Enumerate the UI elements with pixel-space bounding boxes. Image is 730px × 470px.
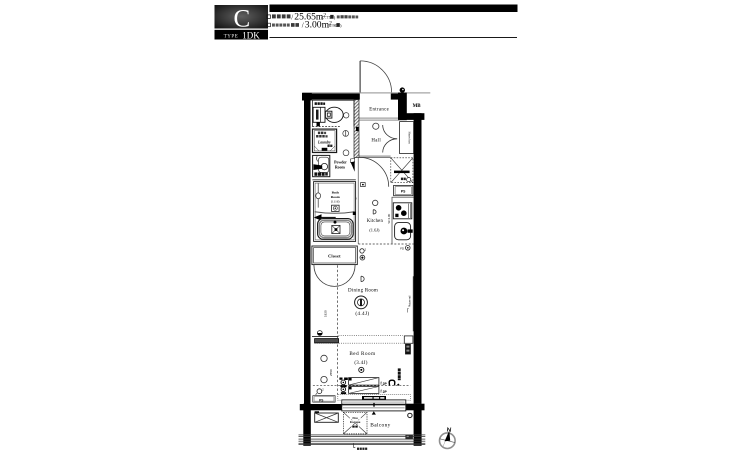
svg-text:2: 2 bbox=[322, 387, 324, 391]
svg-text:Closet: Closet bbox=[328, 254, 341, 259]
svg-text:Balcony: Balcony bbox=[370, 423, 390, 429]
svg-text:Hall: Hall bbox=[371, 138, 381, 143]
svg-text:Kitchen: Kitchen bbox=[367, 219, 384, 224]
svg-text:): ) bbox=[340, 23, 342, 28]
svg-text:FD: FD bbox=[400, 246, 404, 250]
svg-text:/: / bbox=[291, 13, 293, 21]
svg-text:2550: 2550 bbox=[329, 369, 333, 376]
svg-text:(3.4J): (3.4J) bbox=[354, 361, 367, 366]
svg-text:Bath: Bath bbox=[332, 190, 339, 194]
svg-text:(1.6J): (1.6J) bbox=[369, 227, 380, 232]
svg-text:2P: 2P bbox=[383, 390, 388, 394]
svg-text:Shoes box: Shoes box bbox=[407, 131, 411, 144]
svg-text:PS: PS bbox=[401, 189, 406, 193]
svg-text:Laundry: Laundry bbox=[317, 140, 331, 144]
svg-text:Picture rail: Picture rail bbox=[409, 295, 412, 307]
svg-text:Powder: Powder bbox=[334, 161, 347, 165]
svg-text:Room: Room bbox=[335, 165, 346, 169]
svg-text:(0.90: (0.90 bbox=[328, 23, 338, 28]
svg-text:Entrance: Entrance bbox=[369, 107, 389, 112]
svg-text:MB: MB bbox=[413, 104, 422, 109]
svg-text:1DK: 1DK bbox=[242, 30, 260, 40]
svg-text:2P: 2P bbox=[383, 382, 388, 386]
svg-text:): ) bbox=[334, 15, 336, 20]
svg-text:TYPE: TYPE bbox=[224, 34, 239, 39]
svg-text:(1116): (1116) bbox=[331, 199, 340, 203]
svg-text:Bed Room: Bed Room bbox=[349, 351, 375, 357]
svg-text:Escape: Escape bbox=[350, 420, 361, 424]
svg-text:1820: 1820 bbox=[323, 310, 327, 317]
svg-text:Dining Room: Dining Room bbox=[348, 289, 378, 294]
svg-text:/: / bbox=[302, 22, 304, 30]
svg-text:PS: PS bbox=[319, 398, 323, 402]
svg-text:2: 2 bbox=[365, 247, 367, 251]
svg-text:Room: Room bbox=[331, 195, 340, 199]
svg-text:W=1.80: W=1.80 bbox=[387, 213, 391, 223]
svg-text:C: C bbox=[233, 5, 250, 32]
svg-text:(4.4J): (4.4J) bbox=[355, 310, 369, 317]
